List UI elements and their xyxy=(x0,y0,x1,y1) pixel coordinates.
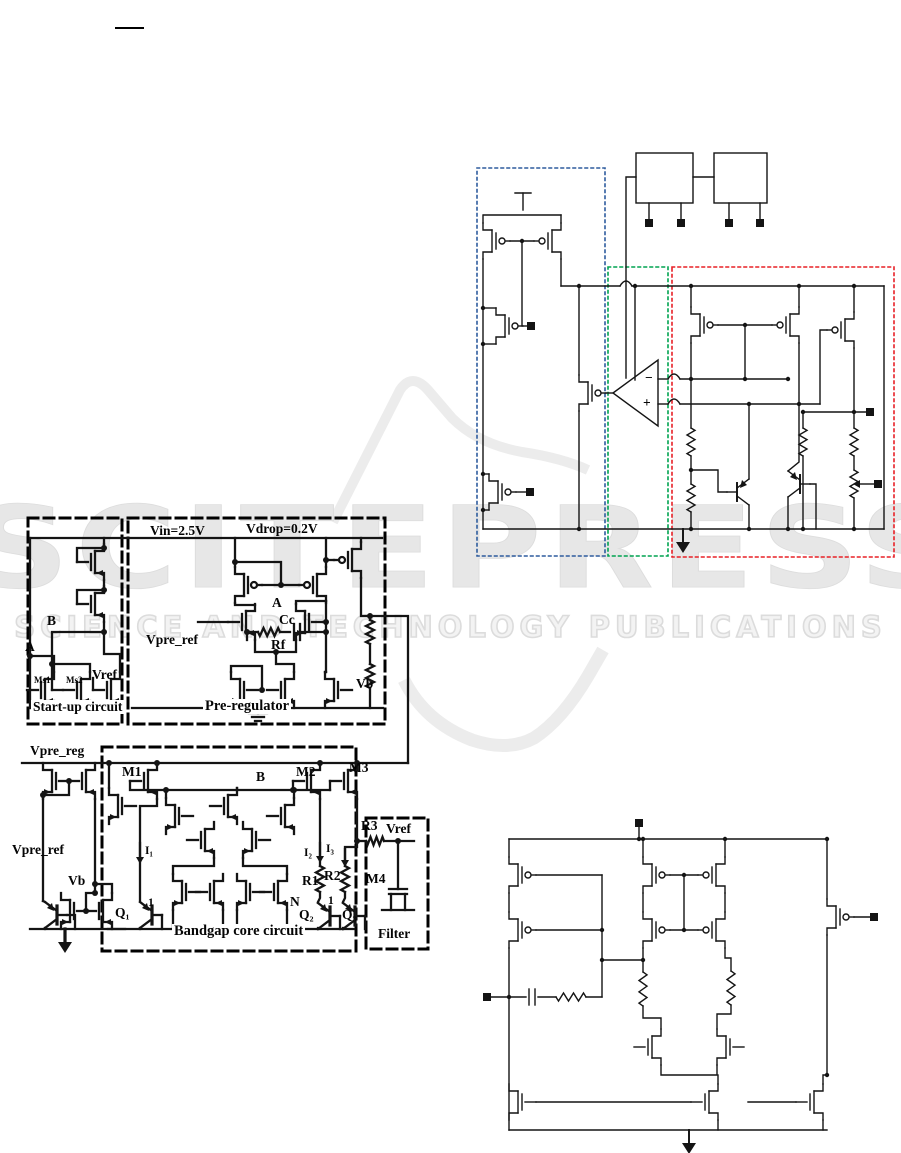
label-i2: I₂ xyxy=(304,848,312,860)
label-m3: M3 xyxy=(349,761,369,775)
label-vb2: Vb xyxy=(68,874,85,888)
label-vref-startup: Vref xyxy=(92,668,117,682)
label-node-1a: 1 xyxy=(148,898,154,910)
label-r3: R3 xyxy=(361,819,378,833)
label-m2: M2 xyxy=(296,765,316,779)
label-q1: Q₁ xyxy=(115,906,130,920)
label-m1: M1 xyxy=(122,765,142,779)
label-vpre-reg: Vpre_reg xyxy=(30,744,84,758)
label-vdrop: Vdrop=0.2V xyxy=(246,522,318,536)
label-r2: R2 xyxy=(324,869,341,883)
label-r1: R1 xyxy=(302,874,319,888)
label-vpre-ref2: Vpre_ref xyxy=(12,843,64,857)
label-opamp-plus: + xyxy=(643,396,651,410)
label-node-1b: 1 xyxy=(328,896,334,908)
label-startup-title: Start-up circuit xyxy=(31,700,124,714)
label-opamp-minus: − xyxy=(645,371,653,385)
label-vb: Vb xyxy=(356,677,373,691)
label-i3: I₃ xyxy=(326,844,334,856)
label-q3: Q₃ xyxy=(342,908,357,922)
label-preregulator-title: Pre-regulator xyxy=(203,699,291,714)
label-node-a: A xyxy=(25,640,35,654)
label-node-b2: B xyxy=(256,770,265,784)
label-vpre-ref: Vpre_ref xyxy=(146,633,198,647)
label-core-title: Bandgap core circuit xyxy=(172,924,305,939)
label-vref-out: Vref xyxy=(386,822,411,836)
label-rf: Rf xyxy=(271,638,285,652)
label-vin: Vin=2.5V xyxy=(150,524,205,538)
label-filter-title: Filter xyxy=(376,927,412,941)
label-node-a2: A xyxy=(272,596,282,610)
circuit-schematics-canvas xyxy=(0,0,901,1153)
label-m4: M4 xyxy=(366,872,386,886)
label-ms2: Ms2 xyxy=(66,676,83,685)
label-ms1: Ms1 xyxy=(34,676,51,685)
paper-page: { "page": {"width": 901, "height": 1153,… xyxy=(0,0,901,1153)
label-cc: Cc xyxy=(279,613,295,627)
label-q2: Q₂ xyxy=(299,908,314,922)
label-node-b: B xyxy=(47,614,56,628)
label-i1: I₁ xyxy=(145,846,153,858)
